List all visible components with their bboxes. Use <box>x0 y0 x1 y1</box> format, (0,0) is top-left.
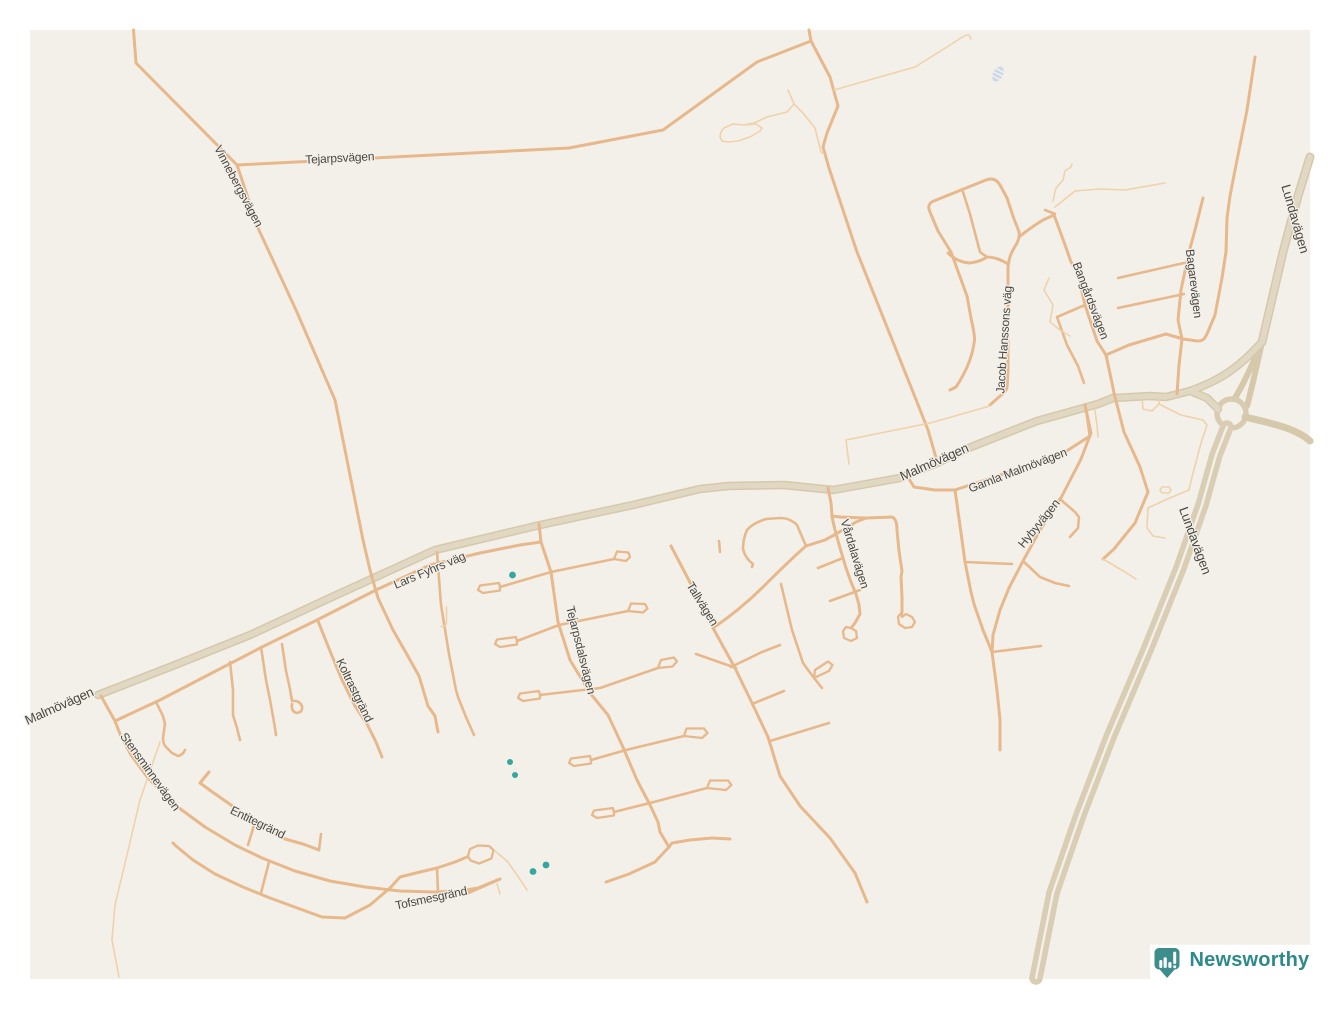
svg-text:Newsworthy: Newsworthy <box>1190 949 1310 971</box>
